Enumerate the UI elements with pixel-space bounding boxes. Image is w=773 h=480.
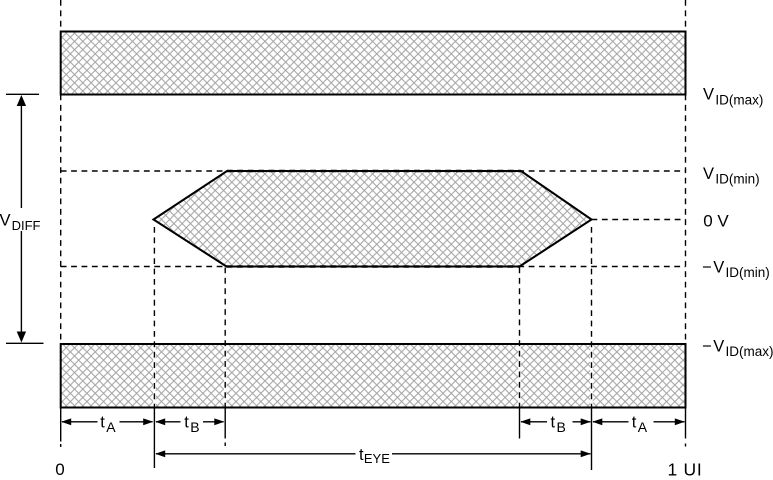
svg-text:t: t — [551, 413, 556, 431]
svg-text:A: A — [106, 419, 116, 435]
svg-text:V: V — [703, 86, 714, 104]
svg-text:ID(min): ID(min) — [715, 171, 759, 186]
svg-text:B: B — [557, 419, 566, 435]
svg-text:V: V — [703, 165, 714, 183]
svg-text:ID(max): ID(max) — [726, 344, 773, 359]
svg-text:ID(max): ID(max) — [715, 92, 763, 107]
svg-text:1 UI: 1 UI — [668, 460, 703, 480]
svg-text:−: − — [702, 338, 712, 356]
svg-text:t: t — [184, 413, 189, 431]
svg-text:t: t — [632, 413, 637, 431]
svg-text:A: A — [638, 419, 648, 435]
svg-text:EYE: EYE — [364, 451, 390, 466]
svg-text:V: V — [713, 258, 724, 276]
svg-text:ID(min): ID(min) — [726, 265, 770, 280]
svg-text:V: V — [0, 212, 11, 230]
svg-text:−: − — [702, 258, 712, 276]
svg-text:t: t — [100, 413, 105, 431]
svg-text:0 V: 0 V — [703, 211, 729, 230]
svg-text:0: 0 — [55, 460, 64, 479]
svg-text:DIFF: DIFF — [12, 218, 41, 233]
svg-text:B: B — [190, 419, 199, 435]
svg-text:V: V — [713, 338, 724, 356]
